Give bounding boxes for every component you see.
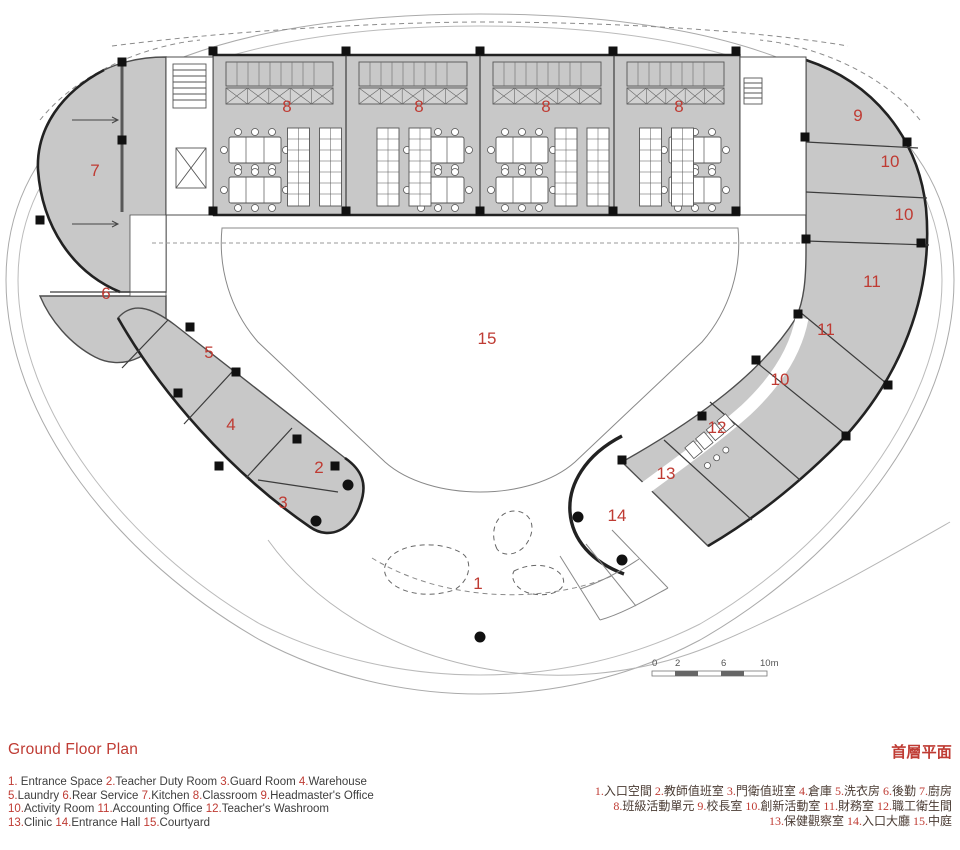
scale-label: 10m [760, 658, 779, 669]
room-label-13: 13 [657, 464, 676, 483]
room-label-8: 8 [414, 97, 423, 116]
legend-number: 14. [847, 814, 862, 828]
room-label-11: 11 [817, 320, 835, 339]
legend-label: Teacher's Washroom [222, 803, 329, 815]
legend-line: 13.Clinic 14.Entrance Hall 15.Courtyard [8, 817, 468, 831]
scale-label: 2 [675, 658, 680, 669]
legend-label: Entrance Hall [71, 817, 143, 829]
legend-english: Ground Floor Plan 1. Entrance Space 2.Te… [8, 741, 468, 830]
legend-number: 13. [769, 814, 784, 828]
legend-label: 入口大廳 [862, 814, 913, 828]
legend-number: 5. [8, 790, 18, 802]
legend-number: 3. [727, 784, 736, 798]
room-label-1: 1 [473, 574, 482, 593]
legend-label: 職工衛生間 [892, 799, 952, 813]
room-label-4: 4 [226, 415, 235, 434]
legend-label: Classroom [202, 790, 260, 802]
room-label-3: 3 [278, 493, 287, 512]
legend-label: 保健觀察室 [784, 814, 847, 828]
legend-label: Teacher Duty Room [115, 776, 220, 788]
legend-number: 14. [55, 817, 71, 829]
legend-label: 倉庫 [808, 784, 835, 798]
drawing-sheet: 02610m 888879101011116515104122133141 Gr… [0, 0, 960, 850]
legend-number: 12. [206, 803, 222, 815]
legend-label: 教師值班室 [664, 784, 727, 798]
legend-label: 班級活動單元 [622, 799, 697, 813]
room-label-11: 11 [863, 272, 881, 291]
legend-label: 創新活動室 [760, 799, 823, 813]
legend-number: 10. [8, 803, 24, 815]
legend-number: 8. [193, 790, 203, 802]
room-label-6: 6 [101, 284, 110, 303]
legend-number: 7. [919, 784, 928, 798]
legend-label: Warehouse [308, 776, 366, 788]
room-label-7: 7 [90, 161, 99, 180]
legend-number: 9. [261, 790, 271, 802]
legend-number: 11. [823, 799, 838, 813]
legend-number: 4. [799, 784, 808, 798]
legend-en-lines: 1. Entrance Space 2.Teacher Duty Room 3.… [8, 776, 468, 830]
legend-number: 12. [877, 799, 892, 813]
floor-plan-drawing: 02610m 888879101011116515104122133141 [0, 0, 960, 735]
legend-number: 1. [8, 776, 18, 788]
legend-label: Guard Room [230, 776, 299, 788]
plan-title-en: Ground Floor Plan [8, 741, 468, 759]
legend-line: 8.班級活動單元 9.校長室 10.創新活動室 11.財務室 12.職工衛生間 [482, 799, 952, 814]
legend-label: 門衛值班室 [736, 784, 799, 798]
legend-line: 10.Activity Room 11.Accounting Office 12… [8, 803, 468, 817]
legend-label: 入口空間 [604, 784, 655, 798]
legend-zh-lines: 1.入口空間 2.教師值班室 3.門衛值班室 4.倉庫 5.洗衣房 6.後勤 7… [482, 784, 952, 829]
legend-line: 13.保健觀察室 14.入口大廳 15.中庭 [482, 814, 952, 829]
room-label-8: 8 [674, 97, 683, 116]
legend-label: 後勤 [892, 784, 919, 798]
legend-label: 廚房 [928, 784, 952, 798]
legend-number: 6. [883, 784, 892, 798]
legend-label: Kitchen [151, 790, 193, 802]
scale-label: 0 [652, 658, 657, 669]
legend-label: 洗衣房 [844, 784, 883, 798]
room-label-12: 12 [708, 418, 727, 437]
legend-number: 15. [144, 817, 160, 829]
room-label-2: 2 [314, 458, 323, 477]
legend-label: Entrance Space [18, 776, 106, 788]
room-label-5: 5 [204, 343, 213, 362]
legend-label: Clinic [24, 817, 55, 829]
legend-number: 5. [835, 784, 844, 798]
legend-label: Headmaster's Office [270, 790, 374, 802]
room-label-8: 8 [541, 97, 550, 116]
legend-label: Activity Room [24, 803, 98, 815]
legend-number: 15. [913, 814, 928, 828]
legend-number: 6. [62, 790, 72, 802]
scale-label: 6 [721, 658, 726, 669]
legend-label: 中庭 [928, 814, 952, 828]
legend-line: 1. Entrance Space 2.Teacher Duty Room 3.… [8, 776, 468, 790]
plan-title-zh: 首層平面 [482, 741, 952, 762]
legend-line: 1.入口空間 2.教師值班室 3.門衛值班室 4.倉庫 5.洗衣房 6.後勤 7… [482, 784, 952, 799]
room-label-10: 10 [771, 370, 790, 389]
legend-line: 5.Laundry 6.Rear Service 7.Kitchen 8.Cla… [8, 790, 468, 804]
legend-label: Courtyard [160, 817, 211, 829]
room-label-10: 10 [895, 205, 914, 224]
legend-number: 10. [745, 799, 760, 813]
legend-number: 13. [8, 817, 24, 829]
room-label-10: 10 [881, 152, 900, 171]
legend-number: 3. [220, 776, 230, 788]
room-label-15: 15 [478, 329, 497, 348]
legend-number: 2. [655, 784, 664, 798]
scale-bar: 02610m [652, 658, 779, 676]
legend-label: Rear Service [72, 790, 142, 802]
legend-number: 8. [613, 799, 622, 813]
legend-label: 校長室 [706, 799, 745, 813]
room-label-8: 8 [282, 97, 291, 116]
legend-number: 11. [98, 803, 113, 815]
legend-number: 7. [142, 790, 152, 802]
legend-number: 1. [595, 784, 604, 798]
legend-label: 財務室 [838, 799, 877, 813]
legend-label: Accounting Office [113, 803, 206, 815]
legend-number: 2. [106, 776, 116, 788]
entrance-steps [560, 530, 668, 620]
room-label-14: 14 [608, 506, 627, 525]
legend-label: Laundry [18, 790, 63, 802]
legend-chinese: 首層平面 1.入口空間 2.教師值班室 3.門衛值班室 4.倉庫 5.洗衣房 6… [482, 741, 952, 829]
room-label-9: 9 [853, 106, 862, 125]
